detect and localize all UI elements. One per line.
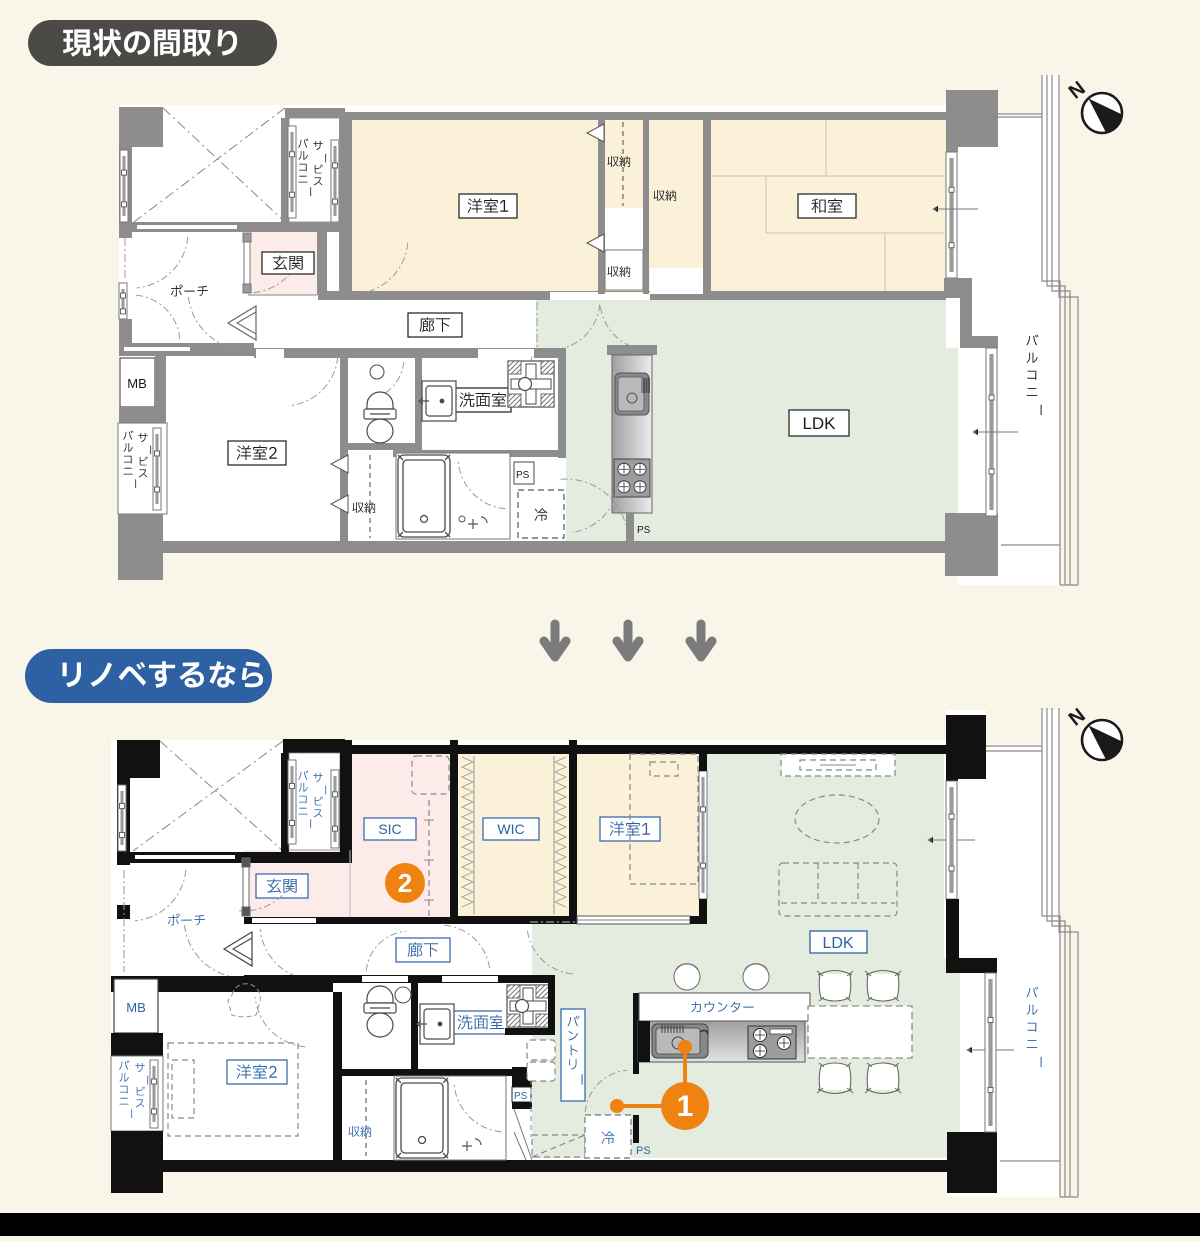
svg-text:SIC: SIC	[378, 821, 401, 837]
svg-text:MB: MB	[127, 376, 147, 391]
svg-text:PS: PS	[637, 525, 651, 536]
svg-text:PS: PS	[516, 470, 530, 481]
svg-text:PS: PS	[514, 1091, 528, 1102]
svg-text:WIC: WIC	[497, 821, 524, 837]
svg-text:PS: PS	[636, 1145, 651, 1157]
svg-text:LDK: LDK	[802, 414, 836, 433]
svg-text:MB: MB	[126, 1000, 146, 1015]
svg-text:2: 2	[398, 868, 412, 898]
svg-text:1: 1	[677, 1090, 694, 1123]
svg-text:LDK: LDK	[822, 935, 853, 952]
